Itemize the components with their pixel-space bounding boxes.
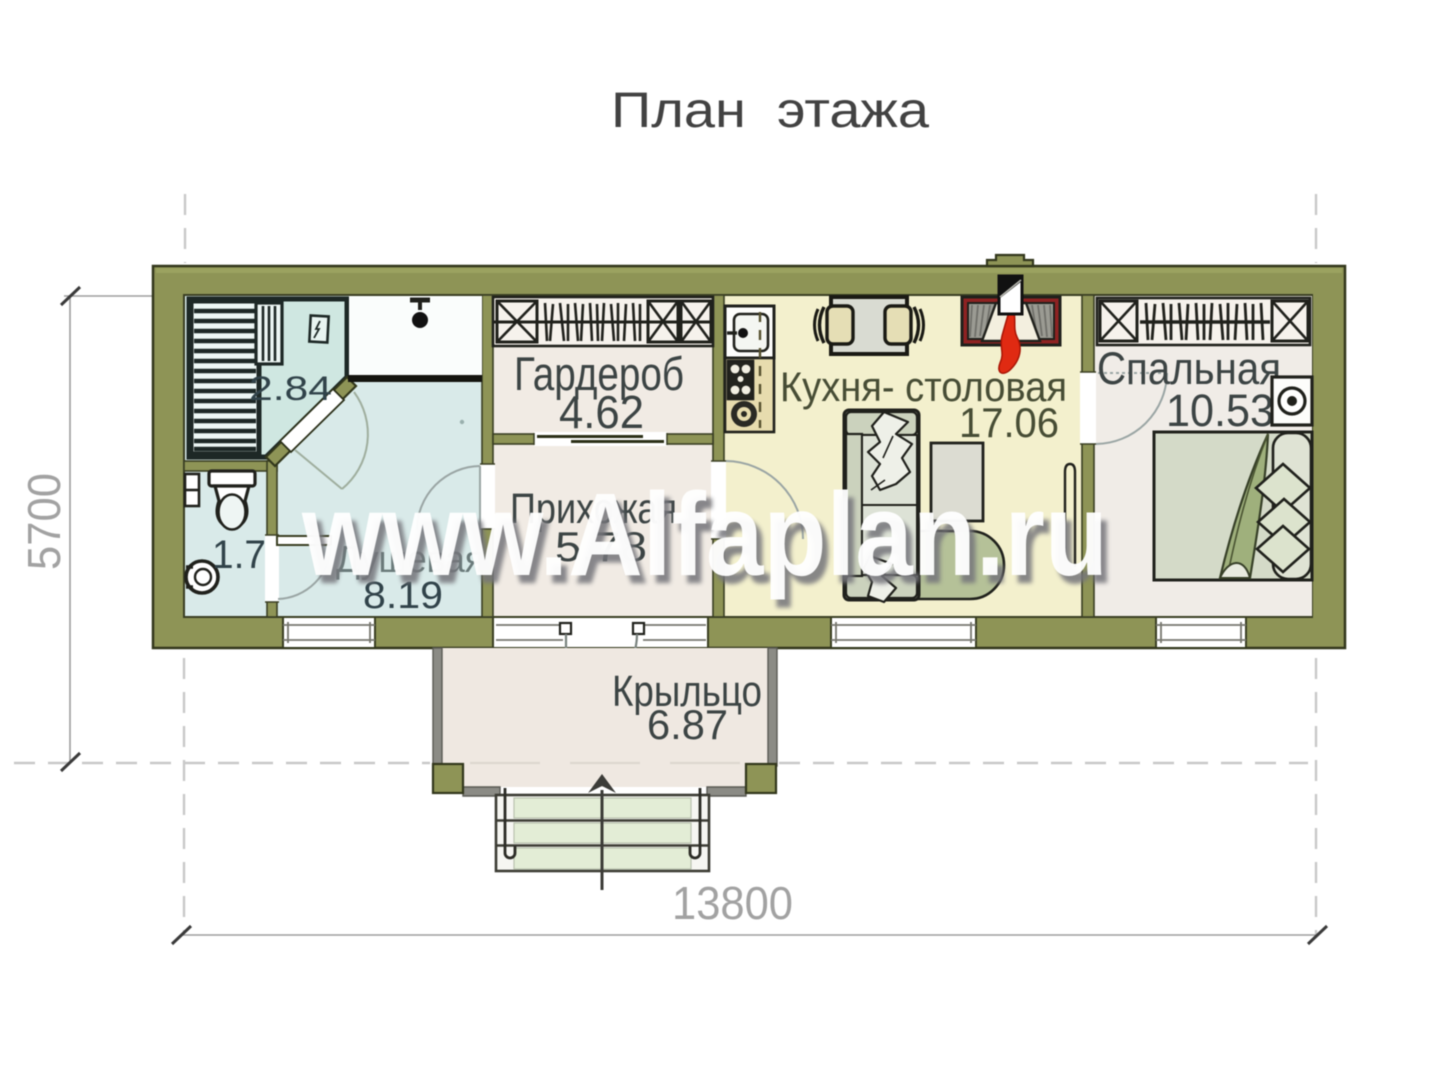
svg-text:13800: 13800 [672,877,793,929]
svg-text:1.7: 1.7 [212,533,266,577]
svg-text:www.Alfaplan.ru: www.Alfaplan.ru [301,469,1108,601]
svg-text:17.06: 17.06 [959,399,1059,446]
svg-text:6.87: 6.87 [647,701,728,748]
svg-text:2.84: 2.84 [249,370,332,408]
svg-text:4.62: 4.62 [559,386,644,438]
svg-text:5700: 5700 [18,473,70,570]
svg-text:10.53: 10.53 [1166,385,1274,436]
svg-text:План этажа: План этажа [611,82,929,138]
